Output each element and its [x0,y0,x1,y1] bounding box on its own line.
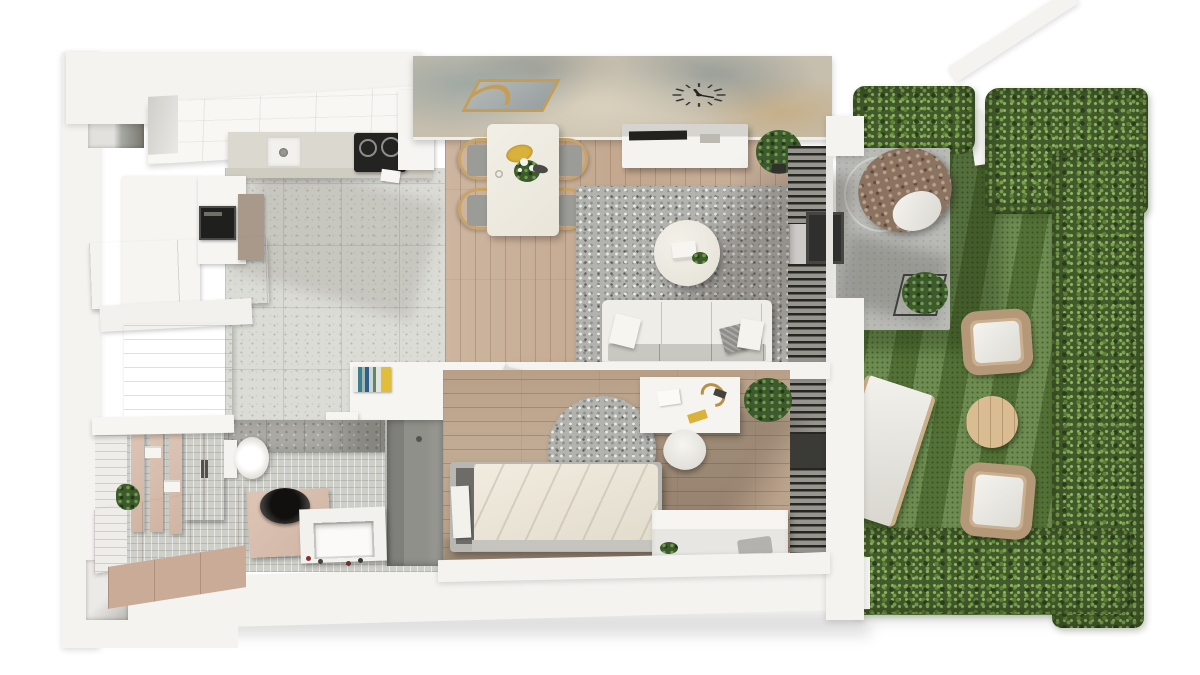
hob-burner-left [359,139,377,157]
terrace-wall-upper [826,116,864,156]
entry-wood-panel-wall [124,324,232,424]
kitchen-towel [380,169,400,184]
terrace-wall-lower [826,298,864,620]
table-cup [495,170,503,178]
wicker-chair-south [959,461,1037,541]
shower-drain [416,436,422,442]
wall-clock-icon [666,80,732,110]
wicker-chair-north [960,308,1034,377]
louver-blinds-mid [788,264,828,434]
chair-cushion [972,474,1024,528]
coffee-table-sprig [692,252,708,264]
washer-door-opening [313,521,374,559]
cabinet-handles [201,460,204,478]
chair-seat [558,145,582,176]
gold-wall-mirror [461,79,561,112]
book-row [353,367,391,392]
garden-wall-diagonal [948,0,1079,82]
laundry-items [306,556,311,561]
garden-round-table [966,396,1018,448]
oven-display [204,212,222,216]
desk-papers [657,389,681,407]
walk-in-shower [385,420,443,566]
entry-shelf-strip [92,415,234,435]
bed-duvet [474,464,658,542]
hedge-bottom [845,528,1130,614]
louver-blinds-south [788,468,828,560]
television [629,130,687,140]
floor-plan-scene [0,0,1200,675]
bedroom-desk [640,377,740,433]
kitchen-faucet [279,148,288,157]
terrace-door-frame [826,156,833,298]
console-plant-pot [772,164,786,173]
table-flower-blooms [520,158,528,166]
sliding-door-frame [806,212,844,264]
towel [164,480,180,492]
kitchen-upper-cabinets-end [148,95,178,155]
cube-planter-plant [902,272,948,314]
bed-foot-rail [472,540,658,551]
towel [145,446,161,458]
bench-sprig [660,542,678,554]
hedge-top-terrace [853,86,975,154]
bedroom-plant [744,378,792,422]
bed-pillow [451,486,472,539]
chair-cushion [973,320,1022,363]
sofa-pillow-right [737,318,764,350]
door-post [790,434,826,468]
sideboard-deco [700,134,720,143]
toilet-bowl [235,437,269,479]
